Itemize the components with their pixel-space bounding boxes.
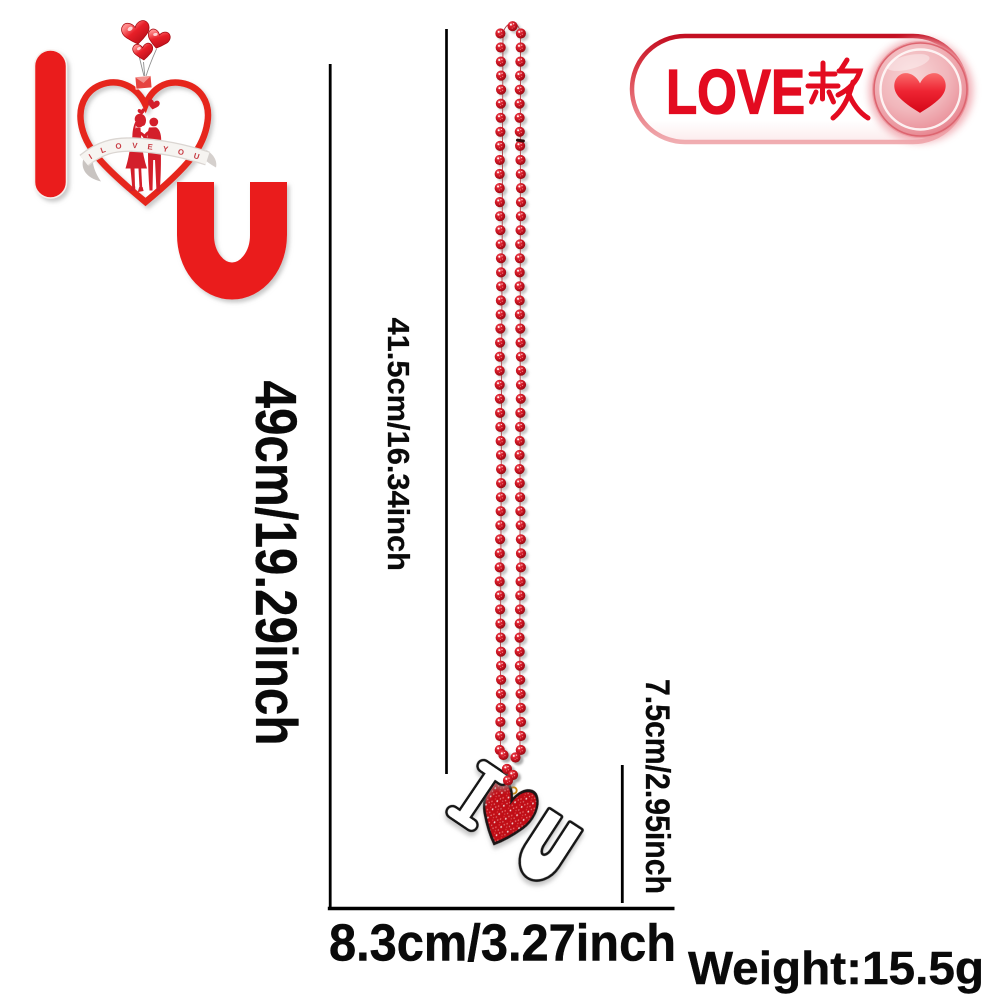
svg-text:8.3cm/3.27inch: 8.3cm/3.27inch — [329, 915, 676, 973]
svg-text:41.5cm/16.34inch: 41.5cm/16.34inch — [381, 318, 416, 572]
svg-text:49cm/19.29inch: 49cm/19.29inch — [243, 381, 308, 746]
svg-text:Weight:15.5g: Weight:15.5g — [688, 942, 984, 994]
svg-text:7.5cm/2.95inch: 7.5cm/2.95inch — [638, 679, 676, 894]
svg-text:LOVE: LOVE — [666, 58, 805, 128]
